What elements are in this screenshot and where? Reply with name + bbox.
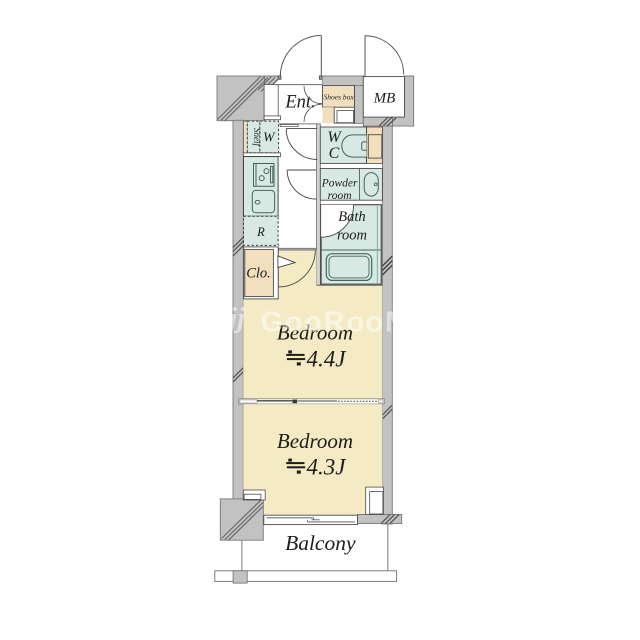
svg-text:C: C	[329, 145, 340, 162]
svg-text:GooRooM: GooRooM	[261, 307, 411, 339]
svg-text:Shoes box: Shoes box	[323, 93, 354, 102]
svg-text:MB: MB	[373, 91, 396, 107]
svg-text:W: W	[327, 129, 342, 146]
svg-text:room: room	[337, 228, 367, 244]
svg-text:R: R	[256, 225, 265, 239]
svg-text:Ent.: Ent.	[284, 93, 315, 113]
svg-text:4.3J: 4.3J	[307, 455, 348, 480]
svg-text:Powder: Powder	[321, 178, 358, 190]
svg-text:Balcony: Balcony	[285, 531, 356, 555]
svg-text:Bath: Bath	[338, 209, 365, 225]
svg-text:Bedroom: Bedroom	[277, 429, 353, 453]
svg-text:4.4J: 4.4J	[307, 346, 348, 371]
svg-text:room: room	[328, 190, 352, 202]
svg-text:jj: jj	[225, 302, 246, 334]
svg-text:W: W	[263, 130, 276, 145]
svg-text:Clo.: Clo.	[246, 265, 271, 281]
